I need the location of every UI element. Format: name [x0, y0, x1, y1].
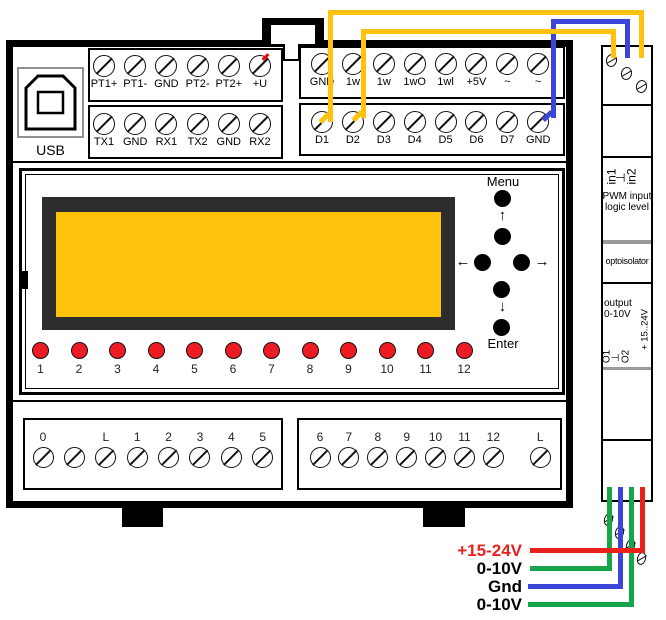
screw-terminal — [218, 113, 240, 135]
screw-terminal — [95, 447, 116, 468]
panel-side-notch — [19, 271, 28, 289]
screw-terminal — [189, 447, 210, 468]
terminal: 12 — [479, 430, 507, 488]
screw-terminal — [338, 447, 359, 468]
led-lamp — [148, 342, 165, 359]
terminal: 8 — [364, 430, 392, 488]
screw-terminal — [530, 447, 551, 468]
terminal: 9 — [393, 430, 421, 488]
terminal-label: 4 — [228, 430, 235, 445]
terminal-label: 11 — [458, 430, 470, 445]
side-module — [601, 45, 653, 502]
arrow-up-icon: ↑ — [494, 207, 511, 224]
wire-label-gnd: Gnd — [360, 577, 522, 597]
terminal-label: 10 — [429, 430, 442, 445]
device-foot-right — [423, 507, 465, 527]
pwm-line1: PWM input — [602, 191, 652, 202]
led-lamp — [417, 342, 434, 359]
led-strip: 1 2 3 4 5 6 7 8 9 10 — [32, 342, 473, 376]
arrow-down-icon: ↓ — [494, 298, 511, 315]
terminal: 3 — [186, 430, 214, 488]
screw-terminal — [155, 55, 177, 77]
screw-terminal — [425, 447, 446, 468]
side-label-in2: in2 — [625, 164, 638, 190]
led-number: 4 — [153, 362, 160, 376]
wire-label-supply: +15-24V — [360, 541, 522, 561]
wire-segment — [361, 29, 616, 34]
terminal: PT2- — [184, 55, 212, 100]
terminal: TX1 — [90, 113, 118, 157]
screw-terminal — [221, 447, 242, 468]
wire-segment — [618, 487, 623, 589]
terminal-label: GND — [217, 136, 241, 148]
supply-range-label: + 15..24V — [640, 304, 651, 356]
terminal-label: ~ — [535, 76, 541, 88]
nav-left-button[interactable] — [474, 254, 491, 271]
terminal-label: +5V — [467, 76, 487, 88]
terminal-label: D6 — [469, 134, 483, 146]
terminal: 1wO — [401, 53, 429, 97]
pwm-input-text: PWM input logic level — [602, 191, 652, 213]
screw-terminal — [33, 447, 54, 468]
screw-terminal — [373, 53, 395, 75]
wire-segment — [530, 566, 612, 571]
led-number: 6 — [230, 362, 237, 376]
din-rail-clip-notch — [283, 44, 300, 61]
wire-segment — [629, 487, 634, 607]
terminal-block-serial: TX1 GND RX1 TX2 GND RX2 — [88, 105, 283, 159]
terminal-label: 1w — [346, 76, 360, 88]
terminal-label: 8 — [374, 430, 381, 445]
side-bottom-screw-4 — [635, 551, 647, 566]
terminal-label: 1 — [134, 430, 141, 445]
side-divider-gray — [603, 240, 651, 244]
terminal-block-onewire: GND 1w 1w 1wO 1wl +5V ~ ~ — [299, 46, 565, 99]
wire-segment — [611, 29, 616, 58]
terminal: ~ — [493, 53, 521, 97]
terminal: 6 — [306, 430, 334, 488]
terminal-block-pt: PT1+ PT1- GND PT2- PT2+ +U — [88, 48, 283, 102]
terminal-label: TX2 — [187, 136, 207, 148]
screw-terminal — [155, 113, 177, 135]
side-divider — [603, 282, 651, 284]
terminal-label: PT2+ — [215, 78, 242, 90]
pwm-line2: logic level — [602, 202, 652, 213]
terminal: +5V — [462, 53, 490, 97]
led-lamp — [71, 342, 88, 359]
terminal: L — [526, 430, 554, 488]
side-divider — [603, 156, 651, 158]
terminal-label: D1 — [315, 134, 329, 146]
screw-terminal — [404, 111, 426, 133]
wire-segment — [528, 584, 623, 589]
screw-terminal — [124, 113, 146, 135]
terminal: PT1- — [121, 55, 149, 100]
side-label-o2: O2 — [621, 349, 632, 365]
terminal: 5 — [249, 430, 277, 488]
terminal: 1 — [123, 430, 151, 488]
terminal: 7 — [335, 430, 363, 488]
led-lamp — [302, 342, 319, 359]
terminal-label: 6 — [317, 430, 324, 445]
side-divider-gray — [603, 367, 651, 370]
terminal-label: 12 — [487, 430, 500, 445]
terminal-block-outputs-right: 6 7 8 9 10 11 12 L — [297, 418, 562, 490]
screw-terminal — [249, 113, 271, 135]
din-rail-clip-slot — [271, 25, 315, 44]
led-lamp — [109, 342, 126, 359]
led-indicator: 10 — [379, 342, 396, 376]
screw-terminal — [124, 55, 146, 77]
terminal-label: PT2- — [186, 78, 210, 90]
terminal-label: L — [537, 430, 544, 445]
screw-terminal — [396, 447, 417, 468]
terminal-label: PT1- — [123, 78, 147, 90]
terminal-label: GND — [526, 134, 550, 146]
screw-terminal — [454, 447, 475, 468]
screw-terminal — [435, 111, 457, 133]
terminal-label: D5 — [439, 134, 453, 146]
led-number: 8 — [307, 362, 314, 376]
section-divider-bottom — [13, 400, 566, 402]
usb-b-connector-icon — [24, 74, 77, 131]
section-divider-top — [13, 161, 566, 163]
menu-button-label: Menu — [478, 174, 528, 189]
wire-segment — [528, 602, 634, 607]
screw-terminal — [218, 55, 240, 77]
screw-terminal — [373, 111, 395, 133]
screw-terminal — [496, 53, 518, 75]
led-indicator: 7 — [263, 342, 280, 376]
terminal-block-outputs-left: 0 L 1 2 3 4 5 — [23, 418, 283, 490]
terminal: ~ — [524, 53, 552, 97]
side-divider — [603, 104, 651, 106]
led-lamp — [263, 342, 280, 359]
led-number: 7 — [268, 362, 275, 376]
led-lamp — [225, 342, 242, 359]
terminal-label: GND — [123, 136, 147, 148]
controller-wiring-diagram: USB PT1+ PT1- GND PT2- PT2+ +U — [0, 0, 666, 620]
led-indicator: 8 — [302, 342, 319, 376]
terminal-label: 0 — [40, 430, 47, 445]
terminal-label: PT1+ — [91, 78, 118, 90]
arrow-left-icon: ← — [453, 253, 473, 270]
led-indicator: 6 — [225, 342, 242, 376]
wire-segment — [607, 487, 612, 571]
led-indicator: 12 — [456, 342, 473, 376]
terminal-label: RX1 — [156, 136, 177, 148]
terminal: PT1+ — [90, 55, 118, 100]
terminal-label: ~ — [504, 76, 510, 88]
terminal: 4 — [217, 430, 245, 488]
led-indicator: 2 — [71, 342, 88, 376]
wire-segment — [361, 29, 366, 118]
terminal-label: D4 — [408, 134, 422, 146]
wire-segment — [530, 548, 645, 553]
led-number: 10 — [380, 362, 393, 376]
screw-terminal — [496, 111, 518, 133]
terminal-label: 1wl — [437, 76, 454, 88]
terminal: D6 — [462, 111, 490, 154]
terminal-label: D2 — [346, 134, 360, 146]
terminal: 0 — [29, 430, 57, 488]
nav-up-button[interactable] — [494, 228, 511, 245]
screw-terminal — [187, 55, 209, 77]
menu-button[interactable] — [494, 190, 511, 207]
terminal-label: TX1 — [94, 136, 114, 148]
terminal: GND — [215, 113, 243, 157]
terminal: GND — [152, 55, 180, 100]
terminal: D5 — [432, 111, 460, 154]
led-number: 12 — [457, 362, 470, 376]
terminal: D3 — [370, 111, 398, 154]
terminal: D7 — [493, 111, 521, 154]
led-number: 3 — [114, 362, 121, 376]
optoisolator-label: optoisolator — [601, 256, 653, 267]
lcd-frame — [42, 197, 455, 330]
terminal: PT2+ — [215, 55, 243, 100]
led-indicator: 9 — [340, 342, 357, 376]
screw-terminal — [158, 447, 179, 468]
led-lamp — [32, 342, 49, 359]
terminal: 10 — [422, 430, 450, 488]
side-divider — [603, 439, 651, 441]
wire-segment — [625, 19, 630, 58]
wire-label-0-10v-a: 0-10V — [360, 559, 522, 579]
screw-terminal — [249, 55, 271, 77]
terminal-label: D3 — [377, 134, 391, 146]
terminal-label: +U — [253, 78, 267, 90]
screw-terminal — [310, 447, 331, 468]
led-lamp — [379, 342, 396, 359]
terminal: RX1 — [152, 113, 180, 157]
lcd-screen — [56, 212, 441, 317]
terminal-label: 7 — [346, 430, 353, 445]
led-number: 1 — [37, 362, 44, 376]
terminal: TX2 — [184, 113, 212, 157]
terminal-label: L — [102, 430, 109, 445]
screw-terminal — [465, 111, 487, 133]
device-foot-left — [122, 507, 163, 527]
terminal-label: 1w — [377, 76, 391, 88]
terminal: 1w — [370, 53, 398, 97]
led-lamp — [340, 342, 357, 359]
usb-label: USB — [17, 142, 84, 158]
enter-button-label: Enter — [477, 336, 529, 351]
screw-terminal — [127, 447, 148, 468]
terminal-label: 3 — [197, 430, 204, 445]
terminal: GND — [121, 113, 149, 157]
wire-segment — [551, 19, 630, 24]
enter-button[interactable] — [493, 319, 510, 336]
nav-right-button[interactable] — [513, 254, 530, 271]
wire-segment — [640, 487, 645, 553]
led-indicator: 11 — [417, 342, 434, 376]
terminal: 2 — [155, 430, 183, 488]
screw-terminal — [252, 447, 273, 468]
screw-terminal — [93, 55, 115, 77]
led-lamp — [186, 342, 203, 359]
terminal-label: GND — [154, 78, 178, 90]
wire-segment — [328, 10, 333, 122]
terminal-label: 5 — [259, 430, 266, 445]
screw-terminal — [483, 447, 504, 468]
terminal: 1wl — [432, 53, 460, 97]
led-indicator: 4 — [148, 342, 165, 376]
screw-terminal — [187, 113, 209, 135]
screw-terminal — [367, 447, 388, 468]
led-indicator: 3 — [109, 342, 126, 376]
nav-down-button[interactable] — [493, 281, 510, 298]
screw-terminal — [64, 447, 85, 468]
wire-label-0-10v-b: 0-10V — [360, 595, 522, 615]
terminal-label: D7 — [500, 134, 514, 146]
screw-terminal — [404, 53, 426, 75]
terminal: D4 — [401, 111, 429, 154]
terminal-label: 9 — [403, 430, 410, 445]
terminal-label: 2 — [165, 430, 172, 445]
terminal — [60, 430, 88, 488]
arrow-right-icon: → — [532, 253, 552, 270]
terminal-label: RX2 — [249, 136, 270, 148]
led-indicator: 5 — [186, 342, 203, 376]
led-number: 9 — [345, 362, 352, 376]
terminal: +U — [246, 55, 274, 100]
terminal-block-digital: D1 D2 D3 D4 D5 D6 D7 GND — [299, 103, 565, 156]
led-number: 5 — [191, 362, 198, 376]
led-indicator: 1 — [32, 342, 49, 376]
wire-segment — [639, 10, 644, 58]
screw-terminal — [93, 113, 115, 135]
terminal-label: 1wO — [403, 76, 426, 88]
terminal: RX2 — [246, 113, 274, 157]
terminal: 11 — [450, 430, 478, 488]
screw-terminal — [465, 53, 487, 75]
screw-terminal — [435, 53, 457, 75]
terminal: L — [92, 430, 120, 488]
led-lamp — [456, 342, 473, 359]
led-number: 2 — [76, 362, 83, 376]
wire-segment — [328, 10, 644, 15]
led-number: 11 — [419, 362, 431, 376]
screw-terminal — [527, 53, 549, 75]
